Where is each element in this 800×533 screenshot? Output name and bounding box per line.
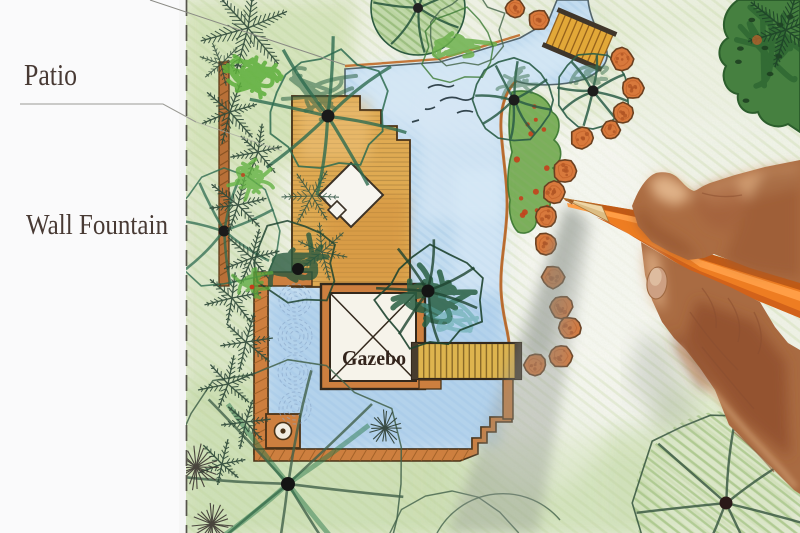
svg-text:Gazebo: Gazebo	[342, 346, 406, 370]
svg-text:Wall Fountain: Wall Fountain	[26, 209, 168, 241]
svg-text:Patio: Patio	[24, 57, 77, 92]
